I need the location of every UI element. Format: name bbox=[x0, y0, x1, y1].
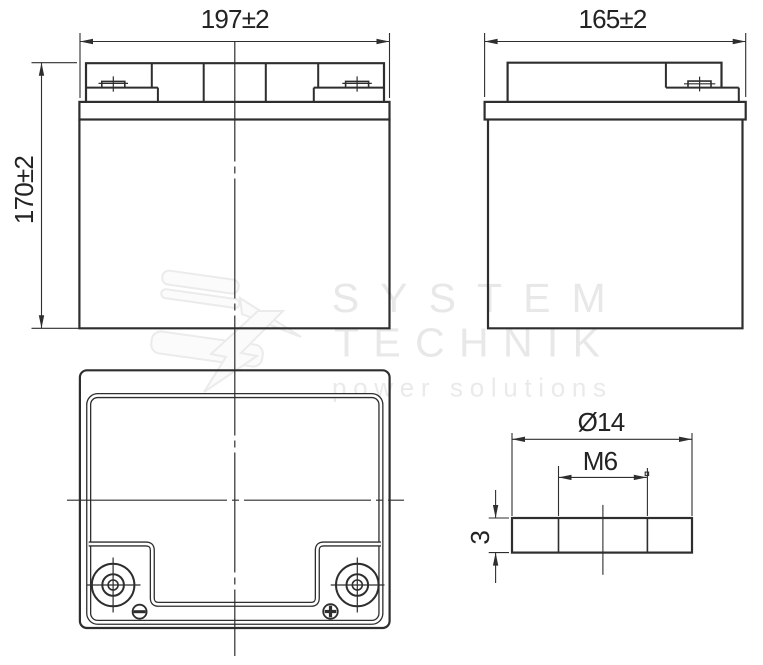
svg-text:TECHNIK: TECHNIK bbox=[334, 320, 600, 366]
svg-text:170±2: 170±2 bbox=[9, 156, 39, 224]
svg-text:M6: M6 bbox=[583, 446, 618, 476]
svg-text:SYSTEM: SYSTEM bbox=[332, 275, 606, 321]
svg-text:197±2: 197±2 bbox=[201, 4, 269, 34]
svg-text:3: 3 bbox=[465, 531, 495, 545]
svg-text:165±2: 165±2 bbox=[578, 4, 646, 34]
svg-text:Ø14: Ø14 bbox=[578, 407, 625, 437]
